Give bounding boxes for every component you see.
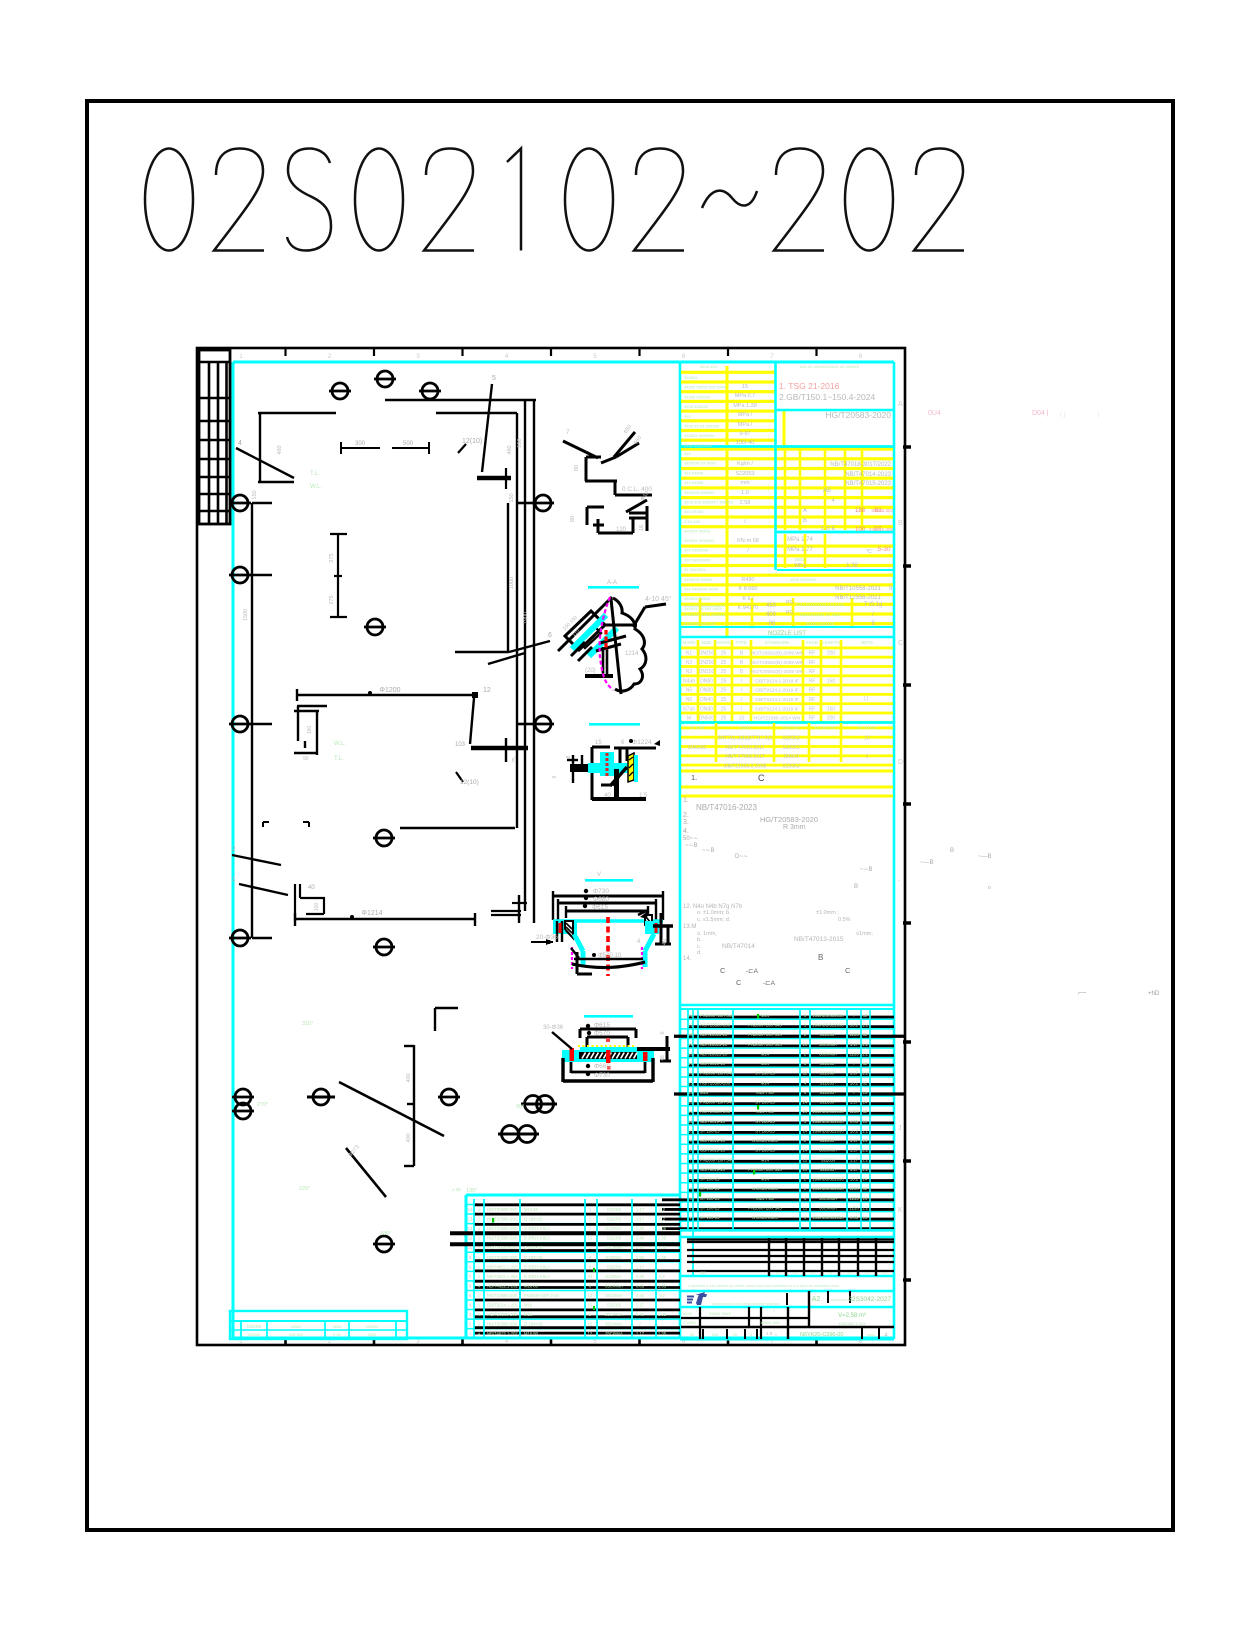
- svg-text:135°: 135°: [466, 1188, 477, 1194]
- svg-text:24: 24: [803, 1148, 808, 1153]
- svg-text:1253: 1253: [849, 1109, 859, 1114]
- svg-text:AB: AB: [823, 488, 831, 494]
- svg-text:B 3RD3 K9L3: B 3RD3 K9L3: [524, 1226, 550, 1231]
- svg-text:0.85: 0.85: [636, 1255, 645, 1260]
- svg-text:MPa 1.77: MPa 1.77: [787, 547, 813, 553]
- svg-text:1.35: 1.35: [658, 1312, 667, 1317]
- svg-text:RF: RF: [809, 716, 816, 722]
- svg-text:TYPE: TYPE: [735, 640, 747, 645]
- svg-text:xxxxxx: xxxxxx: [684, 375, 698, 380]
- svg-text:21: 21: [688, 1023, 693, 1028]
- svg-text:1.2: 1.2: [862, 1128, 868, 1133]
- svg-text:xxxxxxxx x: xxxxxxxx x: [830, 1297, 849, 1302]
- svg-text:xxxxx: xxxxx: [739, 725, 751, 730]
- svg-text:xxxxxx xxxxx: xxxxxx xxxxx: [684, 529, 711, 534]
- svg-text:1.2: 1.2: [862, 1051, 868, 1056]
- svg-text:xx: xx: [811, 1270, 815, 1275]
- svg-text:0.85: 0.85: [636, 1283, 645, 1288]
- svg-text:NB/T4622.1-202: NB/T4622.1-202: [487, 1264, 518, 1269]
- svg-text:24: 24: [863, 1100, 868, 1105]
- svg-text:0.46: 0.46: [636, 1293, 645, 1298]
- svg-text:xxxxxx: xxxxxx: [248, 1332, 261, 1337]
- svg-text:MPa /: MPa /: [738, 412, 753, 418]
- svg-text:8HT741-3(8)(8/T747-0(2: 8HT741-3(8)(8/T747-0(2: [718, 736, 773, 742]
- svg-text:35CrMoA: 35CrMoA: [605, 1312, 623, 1317]
- svg-text:19: 19: [688, 1042, 693, 1047]
- svg-text:24: 24: [863, 1138, 868, 1143]
- svg-text:0.85: 0.85: [850, 1119, 859, 1124]
- svg-text:30CrMoA: 30CrMoA: [819, 1051, 837, 1056]
- svg-text:1.17: 1.17: [636, 1264, 645, 1269]
- svg-text:0.46: 0.46: [636, 1274, 645, 1279]
- svg-text:xxxx xxxxxx: xxxx xxxxxx: [684, 404, 709, 409]
- svg-text:xxxxxxx x xxx: xxxxxxx x xxx: [838, 1321, 866, 1326]
- svg-text:315°: 315°: [302, 1021, 313, 1027]
- svg-text:M16: M16: [524, 1312, 533, 1317]
- svg-text:( ): ( ): [1060, 412, 1066, 418]
- svg-text:NB/T20613-20: NB/T20613-20: [700, 1042, 728, 1047]
- svg-text:D04 |: D04 |: [1032, 410, 1049, 417]
- svg-text:A: A: [803, 508, 807, 514]
- svg-text:Φ530 10: Φ530 10: [598, 953, 622, 959]
- svg-text:S22053+: S22053+: [820, 1138, 837, 1143]
- svg-text:1.17: 1.17: [850, 1148, 859, 1153]
- svg-text:±1.0mm ;: ±1.0mm ;: [816, 910, 839, 916]
- svg-text:B: B: [803, 518, 807, 524]
- svg-text:12: 12: [803, 1205, 808, 1210]
- svg-text:S22053: S22053: [821, 1157, 836, 1162]
- svg-text:4: 4: [831, 498, 834, 504]
- svg-text:12: 12: [688, 1109, 693, 1114]
- svg-text:14: 14: [468, 1207, 473, 1212]
- svg-text:xxxx: xxxx: [867, 1332, 875, 1337]
- svg-text:xxxxx xxxxx xxx xxxx: xxxxx xxxxx xxx xxxx: [684, 385, 727, 390]
- svg-text:M24 7.85: M24 7.85: [756, 1109, 774, 1114]
- svg-text:xxxxxx xxxxxxx: xxxxxx xxxxxxx: [684, 538, 715, 543]
- svg-text:T.L.: T.L.: [310, 471, 320, 477]
- svg-text:NB/T 47010-2017: NB/T 47010-2017: [725, 745, 765, 751]
- svg-text:xx: xx: [847, 1270, 851, 1275]
- svg-text:1.2: 1.2: [862, 1071, 868, 1076]
- svg-text:13: 13: [688, 1100, 693, 1105]
- svg-text:GB/T9124.1-2019 IF: GB/T9124.1-2019 IF: [755, 697, 799, 703]
- svg-text:~∼B: ~∼B: [860, 867, 873, 873]
- svg-text:Q 180×25: Q 180×25: [524, 1217, 543, 1222]
- svg-text:35CrMoA: 35CrMoA: [605, 1283, 623, 1288]
- svg-text:b.: b.: [697, 937, 702, 943]
- svg-text:GB/T21833.2-2008: GB/T21833.2-2008: [724, 763, 767, 769]
- svg-text:M16 80: M16 80: [524, 1331, 539, 1336]
- svg-text:1.17: 1.17: [850, 1071, 859, 1076]
- svg-text:xx xxxx xxx: xx xxxx xxx: [814, 725, 836, 730]
- svg-text:⌐~: ⌐~: [1078, 990, 1086, 997]
- svg-text:0.5%: 0.5%: [838, 917, 851, 923]
- svg-text:N4ab: N4ab: [683, 678, 695, 684]
- svg-text:24: 24: [863, 1177, 868, 1182]
- svg-text:S22053+: S22053+: [820, 1071, 837, 1076]
- svg-text:C: C: [758, 773, 765, 783]
- svg-text:V=2.58 m³: V=2.58 m³: [838, 1313, 866, 1319]
- svg-text:x xx xxx: x xx xxx: [684, 519, 701, 524]
- svg-text:N7ab: N7ab: [683, 706, 695, 712]
- svg-text:A-A: A-A: [607, 580, 617, 586]
- svg-text:~—B: ~—B: [920, 860, 934, 866]
- svg-text:ST 200-25: ST 200-25: [755, 1128, 775, 1133]
- svg-text:25: 25: [721, 660, 727, 666]
- svg-text:x xxxx: x xxxx: [683, 1320, 696, 1325]
- svg-text:1253: 1253: [849, 1051, 859, 1056]
- svg-text:0.46: 0.46: [636, 1226, 645, 1231]
- svg-text:HG/T20580-280: HG/T20580-280: [487, 1312, 518, 1317]
- svg-text:~∼B: ~∼B: [702, 848, 715, 854]
- svg-text:6: 6: [548, 632, 552, 639]
- svg-text:M24: M24: [761, 1051, 770, 1056]
- svg-text:1.5: 1.5: [639, 793, 648, 799]
- svg-text:24: 24: [803, 1128, 808, 1133]
- svg-text:ST 200-25: ST 200-25: [700, 1128, 720, 1133]
- svg-text:12: 12: [588, 1322, 593, 1327]
- svg-text:DN80: DN80: [700, 678, 713, 684]
- svg-text:xxxxxxx xxx xxx: xxxxxxx xxx xxx: [684, 621, 717, 626]
- svg-text:xxxx xx xx xxxxxx: xxxx xx xx xxxxxx: [684, 424, 720, 429]
- svg-text:HG/T20580-280: HG/T20580-280: [700, 1080, 731, 1085]
- svg-text:B 3RD3 K9L3: B 3RD3 K9L3: [752, 1138, 778, 1143]
- svg-text:HG/T20592(B)-2009 WN: HG/T20592(B)-2009 WN: [751, 651, 804, 657]
- svg-text:-96: -96: [767, 621, 776, 627]
- svg-text:1.35: 1.35: [658, 1236, 667, 1241]
- svg-text:HG/T20580-280: HG/T20580-280: [487, 1217, 518, 1222]
- svg-text:≤1mm;: ≤1mm;: [856, 931, 873, 937]
- svg-text:1.17: 1.17: [636, 1217, 645, 1222]
- svg-text:1.2: 1.2: [862, 1148, 868, 1153]
- svg-text:HG/T20580-280: HG/T20580-280: [487, 1236, 518, 1241]
- svg-text:HG/T21599-2014 WN: HG/T21599-2014 WN: [754, 716, 801, 722]
- svg-text:9-97: 9-97: [739, 431, 750, 437]
- svg-text:82: 82: [863, 1080, 868, 1085]
- svg-text:16MnD5/S22053: 16MnD5/S22053: [812, 1119, 844, 1124]
- svg-text:30CrMoA: 30CrMoA: [819, 1042, 837, 1047]
- svg-text:(20): (20): [585, 668, 596, 674]
- svg-text:R 3mm: R 3mm: [783, 824, 806, 831]
- svg-text:GB/T9124.1-201: GB/T9124.1-201: [487, 1303, 519, 1308]
- svg-text:0.85: 0.85: [850, 1215, 859, 1220]
- svg-text:MPa 0.7: MPa 0.7: [735, 393, 755, 399]
- svg-text:NB/T4622.1-202: NB/T4622.1-202: [487, 1274, 518, 1279]
- svg-text:24: 24: [803, 1109, 808, 1114]
- svg-text:6: 6: [660, 1031, 666, 1034]
- svg-text:MPa 1.38: MPa 1.38: [733, 403, 757, 409]
- svg-text:50~∼: 50~∼: [683, 836, 698, 842]
- svg-text:35CrMoA: 35CrMoA: [605, 1322, 623, 1327]
- svg-text:24: 24: [863, 1196, 868, 1201]
- svg-text:C: C: [898, 640, 903, 647]
- svg-text:xxxxxxx xxxxxx: xxxxxxx xxxxxx: [684, 490, 715, 495]
- svg-text:270°: 270°: [257, 1102, 268, 1108]
- svg-text:1.17: 1.17: [850, 1167, 859, 1172]
- svg-text:xxxxx xxx: xxxxx xxx: [760, 1320, 780, 1325]
- svg-text:225°: 225°: [299, 1186, 310, 1192]
- svg-text:D: D: [898, 759, 903, 766]
- svg-text:RF: RF: [809, 651, 816, 657]
- svg-text:R480: R480: [741, 577, 754, 583]
- svg-text:o: o: [988, 885, 991, 891]
- svg-text:Φ680: Φ680: [593, 896, 609, 903]
- svg-text:xx: xx: [776, 1270, 780, 1275]
- svg-text:W.L.: W.L.: [310, 484, 322, 490]
- svg-text:DN6250: DN6250: [688, 745, 707, 751]
- svg-text:12: 12: [803, 1071, 808, 1076]
- svg-text:18.2: 18.2: [850, 1177, 859, 1182]
- svg-text:B 3RD3 K9L3: B 3RD3 K9L3: [524, 1236, 550, 1241]
- svg-text:DN80: DN80: [700, 706, 713, 712]
- svg-text:3.: 3.: [683, 819, 689, 826]
- svg-text:188: 188: [855, 508, 866, 514]
- svg-text:ST 200-25: ST 200-25: [700, 1215, 720, 1220]
- svg-text:12(10): 12(10): [460, 779, 479, 786]
- svg-text:500: 500: [403, 441, 414, 447]
- svg-text:DN200: DN200: [699, 660, 715, 666]
- svg-text:11: 11: [688, 1119, 693, 1124]
- svg-text:1000: 1000: [509, 577, 515, 589]
- svg-text:J: J: [898, 1125, 902, 1132]
- svg-text:S22053+: S22053+: [820, 1167, 837, 1172]
- svg-text:25: 25: [721, 651, 727, 657]
- svg-text:S22053+: S22053+: [820, 1100, 837, 1105]
- svg-text:A: A: [898, 401, 903, 408]
- svg-text:B 3RD3 K9L3: B 3RD3 K9L3: [752, 1215, 778, 1220]
- svg-text:N6: N6: [686, 697, 693, 703]
- svg-text:40: 40: [604, 793, 611, 799]
- svg-text:550: 550: [517, 438, 523, 447]
- svg-text:32S3042-2027: 32S3042-2027: [848, 1296, 891, 1303]
- svg-text:0.2: 0.2: [659, 1274, 665, 1279]
- svg-text:150: 150: [827, 706, 836, 712]
- svg-text:15: 15: [863, 1119, 868, 1124]
- svg-text:xx xxxx: xx xxxx: [690, 725, 706, 730]
- svg-text:MPa /: MPa /: [738, 422, 753, 428]
- svg-text:RF: RF: [809, 697, 816, 703]
- svg-text:M24 7.85: M24 7.85: [756, 1090, 774, 1095]
- svg-text:275: 275: [329, 553, 335, 562]
- svg-text:82: 82: [863, 1186, 868, 1191]
- svg-text:1.17: 1.17: [636, 1331, 645, 1336]
- svg-text:1.35: 1.35: [658, 1245, 667, 1250]
- svg-text:0.46: 0.46: [636, 1312, 645, 1317]
- svg-text:+hD: +hD: [1148, 991, 1160, 997]
- svg-text:1 8: 1 8: [766, 1331, 773, 1336]
- svg-text:K: K: [898, 1207, 903, 1214]
- svg-text:30-Φ36: 30-Φ36: [543, 1025, 564, 1031]
- svg-text:1.2: 1.2: [862, 1205, 868, 1210]
- svg-text:S22053+: S22053+: [820, 1090, 837, 1095]
- svg-text:150: 150: [827, 678, 836, 684]
- svg-text:103: 103: [455, 742, 466, 748]
- svg-text:1. TSG 21-2016: 1. TSG 21-2016: [779, 381, 840, 391]
- svg-text:12: 12: [468, 1226, 473, 1231]
- svg-text:°C: °C: [866, 549, 872, 555]
- svg-text:GB/T9019-20: GB/T9019-20: [700, 1061, 726, 1066]
- svg-text:Φ615: Φ615: [592, 904, 608, 911]
- svg-text:~—B: ~—B: [978, 854, 992, 860]
- svg-text:xxxxxx xxxxxxx: xxxxxx xxxxxxx: [684, 433, 715, 438]
- svg-text:PG: PG: [786, 600, 793, 606]
- svg-text:18.2: 18.2: [850, 1128, 859, 1133]
- svg-text:160: 160: [307, 726, 313, 735]
- svg-text:x xxxxxxx x xxx xxxxxx xx xxxx: x xxxxxxx x xxx xxxxxx xx xxxxx xxxxx xx…: [688, 1283, 839, 1288]
- svg-text:6: 6: [552, 775, 558, 778]
- svg-text:xxx xxx: xxx xxx: [289, 1332, 304, 1337]
- svg-text:NB/T20613-20: NB/T20613-20: [700, 1032, 728, 1037]
- svg-text:4-10 45°: 4-10 45°: [645, 595, 672, 603]
- svg-text:12: 12: [588, 1293, 593, 1298]
- svg-text:12(10): 12(10): [462, 438, 482, 445]
- svg-text:30CrMoA: 30CrMoA: [819, 1196, 837, 1201]
- svg-text:o. ±1.0mm; b.: o. ±1.0mm; b.: [697, 910, 731, 916]
- svg-text:400: 400: [766, 612, 777, 618]
- svg-text:82: 82: [863, 1109, 868, 1114]
- svg-text:16MnD5/S22053: 16MnD5/S22053: [812, 1013, 844, 1018]
- svg-text:ST 200-25: ST 200-25: [755, 1100, 775, 1105]
- svg-text:RF: RF: [809, 706, 816, 712]
- svg-text:2.58: 2.58: [740, 500, 751, 506]
- svg-text:V: V: [597, 872, 601, 878]
- svg-text:40: 40: [308, 885, 315, 891]
- svg-text:25: 25: [512, 757, 518, 763]
- svg-text:1.17: 1.17: [850, 1157, 859, 1162]
- svg-text:1253: 1253: [849, 1205, 859, 1210]
- svg-text:MARK: MARK: [682, 640, 695, 645]
- svg-text:DN150: DN150: [699, 669, 715, 675]
- svg-text:2.: 2.: [683, 812, 689, 819]
- svg-text:xxx: xxx: [684, 414, 692, 419]
- svg-text:180°: 180°: [380, 1231, 391, 1237]
- svg-text:35CrMoA: 35CrMoA: [605, 1293, 623, 1298]
- svg-text:PN2000+20R 345: PN2000+20R 345: [700, 1071, 734, 1076]
- svg-text:35CrMoA: 35CrMoA: [605, 1245, 623, 1250]
- svg-text:0.46: 0.46: [636, 1236, 645, 1241]
- svg-text:NB/T47018-3017/2022: NB/T47018-3017/2022: [830, 462, 891, 468]
- svg-text:12: 12: [588, 1236, 593, 1241]
- svg-text:HG/T20580-280: HG/T20580-280: [487, 1322, 518, 1327]
- svg-text:xx: xx: [865, 1270, 869, 1275]
- svg-text:M24 7.85: M24 7.85: [756, 1196, 774, 1201]
- svg-text:NB/T47014: NB/T47014: [722, 943, 755, 950]
- svg-text:HG/T20580-280: HG/T20580-280: [487, 1207, 518, 1212]
- svg-text:16MnD5/S22053: 16MnD5/S22053: [812, 1023, 844, 1028]
- svg-text:xxxxxxx xxx xxxxxxx: xxxxxxx xxx xxxxxxx: [684, 603, 726, 608]
- svg-text:S22053+: S22053+: [606, 1274, 623, 1279]
- svg-text:80: 80: [574, 465, 580, 471]
- svg-text:1.17: 1.17: [850, 1100, 859, 1105]
- svg-text:18.2: 18.2: [850, 1023, 859, 1028]
- svg-text:90°: 90°: [516, 1104, 524, 1110]
- svg-text:Φ730: Φ730: [593, 888, 609, 895]
- svg-text:xxx xxxxx: xxx xxxxx: [684, 509, 704, 514]
- svg-text:M: M: [687, 716, 691, 722]
- svg-text:1.17: 1.17: [636, 1207, 645, 1212]
- svg-text:1.35: 1.35: [658, 1283, 667, 1288]
- svg-text:xxxx xxxxxxxx: xxxx xxxxxxxx: [684, 443, 713, 448]
- svg-text:20: 20: [688, 1032, 693, 1037]
- svg-text:PN2000+20R 345: PN2000+20R 345: [748, 1032, 782, 1037]
- svg-text:M16 80: M16 80: [524, 1207, 539, 1212]
- svg-text:200: 200: [827, 651, 836, 657]
- svg-text:C: C: [736, 978, 742, 987]
- svg-text:HG/T20592(B)-2009 WN: HG/T20592(B)-2009 WN: [751, 669, 804, 675]
- svg-text:HG/T20580-280: HG/T20580-280: [487, 1245, 518, 1250]
- svg-text:1253: 1253: [849, 1186, 859, 1191]
- svg-text:4.: 4.: [683, 828, 689, 835]
- svg-text:xx: xx: [793, 1270, 797, 1275]
- svg-text:GB/T9019-20: GB/T9019-20: [700, 1138, 726, 1143]
- svg-text:25: 25: [721, 716, 727, 722]
- svg-text:S22053: S22053: [736, 471, 755, 477]
- svg-text:xxxx xxx: xxxx xxx: [700, 364, 718, 369]
- svg-text:NB/T47016-2023: NB/T47016-2023: [696, 803, 757, 812]
- svg-text:GB/T9124.1-2019 IF: GB/T9124.1-2019 IF: [755, 688, 799, 694]
- svg-text:25: 25: [721, 706, 727, 712]
- svg-text:12: 12: [803, 1157, 808, 1162]
- svg-text:S22053: S22053: [607, 1207, 622, 1212]
- svg-text:HG/T20583-2020: HG/T20583-2020: [825, 410, 891, 420]
- svg-text:ST 200-25: ST 200-25: [700, 1205, 720, 1210]
- svg-text:xxxxx: xxxxx: [291, 1324, 302, 1329]
- svg-text:NB/T10558-2021: NB/T10558-2021: [835, 586, 881, 592]
- svg-text:-⊏A: -⊏A: [746, 968, 759, 975]
- svg-text:7 /0.1g: 7 /0.1g: [864, 602, 882, 608]
- svg-text:xxxxxxxxxxx xx xxxx: xxxxxxxxxxx xx xxxx: [800, 612, 842, 617]
- svg-text:0.2: 0.2: [659, 1217, 665, 1222]
- svg-text:xxxx xxx xxxxxx / xxxxxx: xxxx xxx xxxxxx / xxxxxx: [684, 500, 734, 505]
- svg-text:Φ615: Φ615: [594, 1022, 610, 1029]
- svg-text:xxxxx xxxxxx xxx xxxxx xxxxxxx: xxxxx xxxxxx xxx xxxxx xxxxxxx xxxxxxx: [712, 1302, 780, 1306]
- svg-text:24: 24: [803, 1100, 808, 1105]
- svg-text:M24: M24: [761, 1080, 770, 1085]
- svg-text:PN2000+20R 345: PN2000+20R 345: [748, 1205, 782, 1210]
- svg-text:RF: RF: [809, 669, 816, 675]
- svg-text:( ): ( ): [864, 696, 869, 702]
- svg-text:xxxx: xxxx: [683, 1311, 693, 1316]
- svg-text:25: 25: [721, 678, 727, 684]
- svg-text:0.2: 0.2: [659, 1293, 665, 1298]
- svg-text:82: 82: [863, 1061, 868, 1066]
- svg-text:C: C: [845, 966, 851, 975]
- svg-text:1.0: 1.0: [741, 490, 749, 496]
- svg-text:xxx: xxx: [684, 451, 692, 456]
- svg-text:16MnD5/S22053: 16MnD5/S22053: [812, 1215, 844, 1220]
- svg-text:HG/T20592(B)-2009 WN: HG/T20592(B)-2009 WN: [751, 660, 804, 666]
- svg-text:450: 450: [766, 603, 777, 609]
- svg-text:0.46: 0.46: [636, 1245, 645, 1250]
- svg-text:N5: N5: [686, 688, 693, 694]
- svg-text:4: 4: [238, 440, 242, 447]
- svg-text:46: 46: [662, 939, 668, 945]
- svg-text:80: 80: [570, 516, 576, 522]
- svg-text:S22053+: S22053+: [820, 1080, 837, 1085]
- svg-text:DN40: DN40: [700, 697, 713, 703]
- svg-text:1.35: 1.35: [658, 1255, 667, 1260]
- svg-text:PG: PG: [786, 610, 793, 616]
- svg-text:1.17: 1.17: [850, 1138, 859, 1143]
- svg-text:GB/T9019-20: GB/T9019-20: [700, 1119, 726, 1124]
- svg-text:xx xxxxxx: xx xxxxxx: [857, 725, 877, 730]
- svg-text:xxxx: xxxx: [333, 1324, 342, 1329]
- svg-text:1.: 1.: [683, 797, 689, 804]
- svg-text:xxx xxxxx: xxx xxxxx: [684, 480, 704, 485]
- svg-text:22: 22: [688, 1013, 693, 1018]
- svg-text:xxxxx xxxx: xxxxx xxxx: [709, 1311, 731, 1316]
- svg-text:S22053+: S22053+: [820, 1032, 837, 1037]
